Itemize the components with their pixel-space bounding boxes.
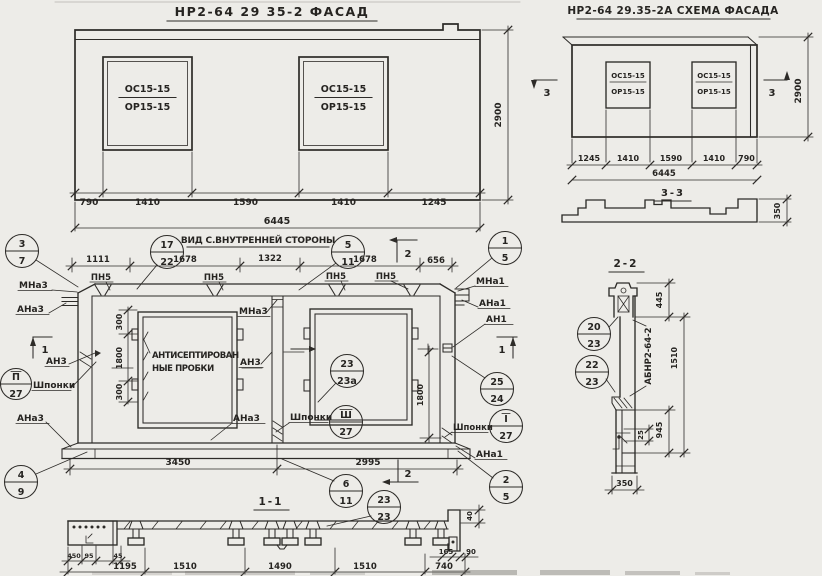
window-mark: ОС15-15	[697, 72, 731, 80]
facade-drawing: НР2-64 29 35-2 ФАСАД ОС15-15 ОР15-15 ОС1…	[70, 4, 513, 232]
callout-III-27: Ш 27	[330, 406, 363, 439]
callout-3-7: 3 7	[6, 235, 79, 288]
note-line1: АНТИСЕПТИРОВАН	[152, 351, 239, 361]
callout-top: 17	[160, 240, 173, 251]
dim-label: 1410	[331, 198, 356, 208]
callout-top: 4	[18, 470, 25, 481]
dim-label: 450	[67, 552, 81, 560]
dim-label: 1410	[703, 154, 726, 163]
window-mark: ОС15-15	[125, 84, 170, 95]
dim-label: 1245	[578, 154, 601, 163]
rib	[228, 521, 244, 545]
callout-20-23: 20 23	[578, 317, 619, 351]
callout-II-27: П 27	[1, 369, 32, 401]
callout-top: П	[12, 372, 20, 383]
dim-label: 1800	[416, 383, 425, 406]
dim-label: 1195	[113, 562, 137, 572]
dim-label: 1678	[353, 255, 377, 265]
section-mark-label: 2	[405, 249, 412, 260]
rib	[128, 521, 144, 545]
callout-top: Ш	[340, 410, 352, 421]
schema-window-2: ОС15-15 ОР15-15	[692, 62, 736, 108]
dim-label: 90	[466, 548, 476, 556]
dim-label: 350	[616, 479, 633, 488]
ana3-label: АНа3	[233, 414, 260, 424]
dim-label: 790	[738, 154, 755, 163]
section-mark-label: 1	[499, 345, 506, 356]
dim-label: 1590	[233, 198, 258, 208]
section-mark-label: 3	[544, 88, 551, 99]
callout-bottom: 23а	[337, 376, 357, 387]
dim-label: 1245	[421, 198, 446, 208]
callout-23-23a: 23 23а	[318, 355, 364, 403]
shponki-label: Шпонки	[453, 423, 493, 433]
callout-bottom: 5	[503, 492, 510, 503]
dim-label: 1111	[86, 255, 110, 265]
dim-height: 2900	[494, 102, 504, 127]
dim-label: 25	[637, 430, 645, 440]
abnr-text: АБНР2-64-2	[644, 327, 654, 384]
callout-top: 3	[19, 239, 26, 250]
callout-top: 20	[587, 322, 601, 333]
callout-bottom: 27	[339, 427, 352, 438]
dim-label: 1410	[135, 198, 160, 208]
mna1-label: МНа1	[476, 277, 505, 287]
facade-window-1: ОС15-15 ОР15-15	[103, 57, 192, 150]
callout-top: 5	[345, 240, 352, 251]
pn5-label: ПН5	[91, 273, 111, 283]
rib	[305, 521, 321, 545]
window-mark: ОР15-15	[697, 88, 731, 96]
inner-view-drawing: ВИД С.ВНУТРЕННЕЙ СТОРОНЫ 1111 1678 1322 …	[16, 234, 517, 485]
inner-window-2	[284, 309, 438, 425]
inner-left-labels: МНа3 АНа3 АН3 АНа3	[16, 281, 101, 447]
callout-top: 23	[340, 359, 353, 370]
dim-label: 95	[84, 552, 94, 560]
mna3-label: МНа3	[239, 307, 268, 317]
section-1-1-title: 1-1	[259, 496, 284, 508]
callout-bottom: 11	[341, 257, 354, 268]
callout-top: I	[504, 414, 508, 425]
facade-title: НР2-64 29 35-2 ФАСАД	[175, 4, 370, 19]
window-mark: ОС15-15	[611, 72, 645, 80]
callout-bottom: 23	[585, 377, 598, 388]
inner-right-dimension: 1800	[416, 346, 441, 442]
dim-label: 350	[773, 202, 782, 219]
drawing-sheet: НР2-64 29 35-2 ФАСАД ОС15-15 ОР15-15 ОС1…	[0, 0, 822, 576]
callout-22-23: 22 23	[576, 356, 616, 393]
schema-dimensions: 2900 1245 1410 1590 1410 790 6445	[567, 33, 813, 184]
callout-25-24: 25 24	[452, 356, 514, 406]
section-mark-1-left: 1	[30, 337, 52, 358]
an3-label: АН3	[46, 357, 67, 367]
pn5-label: ПН5	[326, 272, 346, 282]
pn5-label: ПН5	[376, 272, 396, 282]
dim-label: 1590	[660, 154, 683, 163]
section-mark-2-bottom: 2	[382, 460, 418, 485]
schema-drawing: НР2-64 29.35-2А СХЕМА ФАСАДА ОС15-15 ОР1…	[531, 5, 813, 226]
dim-label: 300	[115, 313, 124, 330]
window-mark: ОС15-15	[321, 84, 366, 95]
section-mark-label: 3	[769, 88, 776, 99]
section-1-1: 1-1	[60, 496, 485, 576]
dim-label: 1678	[173, 255, 197, 265]
callout-bottom: 24	[490, 394, 504, 405]
dim-total: 6445	[652, 169, 676, 179]
schema-window-1: ОС15-15 ОР15-15	[606, 62, 650, 108]
callout-bottom: 9	[18, 487, 25, 498]
shponki-label: Шпонки	[290, 413, 332, 423]
ana1-label: АНа1	[476, 450, 503, 460]
dim-height: 2900	[794, 78, 804, 103]
dim-label: 165	[439, 548, 454, 556]
callout-top: 1	[502, 236, 509, 247]
dim-label: 790	[80, 198, 99, 208]
an3-label: АН3	[240, 358, 261, 368]
window-mark: ОР15-15	[125, 102, 170, 113]
section-mark-label: 1	[42, 345, 49, 356]
callout-top: 22	[585, 360, 598, 371]
shponki-label: Шпонки	[33, 381, 75, 391]
dim-label: 1490	[268, 562, 292, 572]
callout-bottom: 7	[19, 256, 26, 267]
rib	[433, 521, 449, 545]
abnr-label: АБНР2-64-2	[630, 320, 654, 396]
section-2-2-title: 2-2	[614, 258, 639, 270]
dim-label: 1410	[617, 154, 640, 163]
ana3-label: АНа3	[17, 414, 44, 424]
inner-view-title: ВИД С.ВНУТРЕННЕЙ СТОРОНЫ	[181, 234, 335, 246]
dim-label: 1510	[173, 562, 197, 572]
dim-label: 1322	[258, 254, 282, 264]
window-mark: ОР15-15	[611, 88, 645, 96]
section-3-3: 3-3 350	[562, 188, 791, 226]
callout-bottom: 11	[339, 496, 352, 507]
mna3-label: МНа3	[19, 281, 48, 291]
ana3-label: АНа3	[17, 305, 44, 315]
an1-label: АН1	[486, 315, 507, 325]
dim-label: 300	[115, 383, 124, 400]
dim-label: 445	[655, 291, 664, 308]
rib-pair	[264, 521, 298, 549]
section-mark-2-top: 2	[389, 237, 417, 262]
callout-top: 6	[343, 479, 350, 490]
dim-label: 1510	[670, 346, 679, 369]
schema-title: НР2-64 29.35-2А СХЕМА ФАСАДА	[567, 5, 779, 17]
dim-label: 1800	[115, 346, 124, 369]
pn5-labels: ПН5 ПН5 ПН5 ПН5	[90, 272, 408, 290]
inner-left-dimensions: 300 1800 300	[115, 306, 137, 406]
section-mark-3-left: 3	[531, 80, 557, 99]
dim-label: 1510	[353, 562, 377, 572]
callout-I-27: I 27	[490, 410, 523, 443]
section-mark-3-right: 3	[764, 71, 790, 99]
dim-label: 945	[655, 421, 664, 438]
callout-bottom: 27	[9, 389, 22, 400]
section-mark-label: 2	[405, 469, 412, 480]
dim-label: 2995	[355, 458, 380, 468]
inner-top-dimensions: 1111 1678 1322 1678 656	[66, 254, 458, 272]
ana1-label: АНа1	[479, 299, 506, 309]
dim-total: 6445	[264, 216, 290, 227]
callout-bottom: 22	[160, 257, 173, 268]
section-3-3-profile	[562, 199, 757, 222]
section-2-2: 2-2 445 1510 945 25 350	[576, 258, 691, 494]
callout-top: 25	[490, 377, 503, 388]
section-mark-1-right: 1	[497, 337, 517, 358]
callout-bottom: 23	[587, 339, 600, 350]
dim-label: 45	[113, 552, 123, 560]
callouts: 3 7 17 22 5 11 1 5 П 27 23 23а 25 24	[1, 232, 523, 527]
note-line2: НЫЕ ПРОБКИ	[152, 364, 214, 374]
dim-label: 3450	[165, 458, 190, 468]
callout-6-11: 6 11	[282, 459, 363, 508]
callout-bottom: 27	[499, 431, 512, 442]
callout-top: 2	[503, 475, 510, 486]
callout-top: 23	[377, 495, 390, 506]
section-3-3-title: 3-3	[661, 188, 685, 199]
dim-label: 40	[466, 511, 474, 521]
facade-window-2: ОС15-15 ОР15-15	[299, 57, 388, 150]
dim-label: 656	[427, 256, 445, 266]
rib	[405, 521, 421, 545]
pn5-label: ПН5	[204, 273, 224, 283]
window-mark: ОР15-15	[321, 102, 366, 113]
callout-bottom: 5	[502, 253, 509, 264]
shponki-middle: Шпонки	[276, 413, 332, 432]
